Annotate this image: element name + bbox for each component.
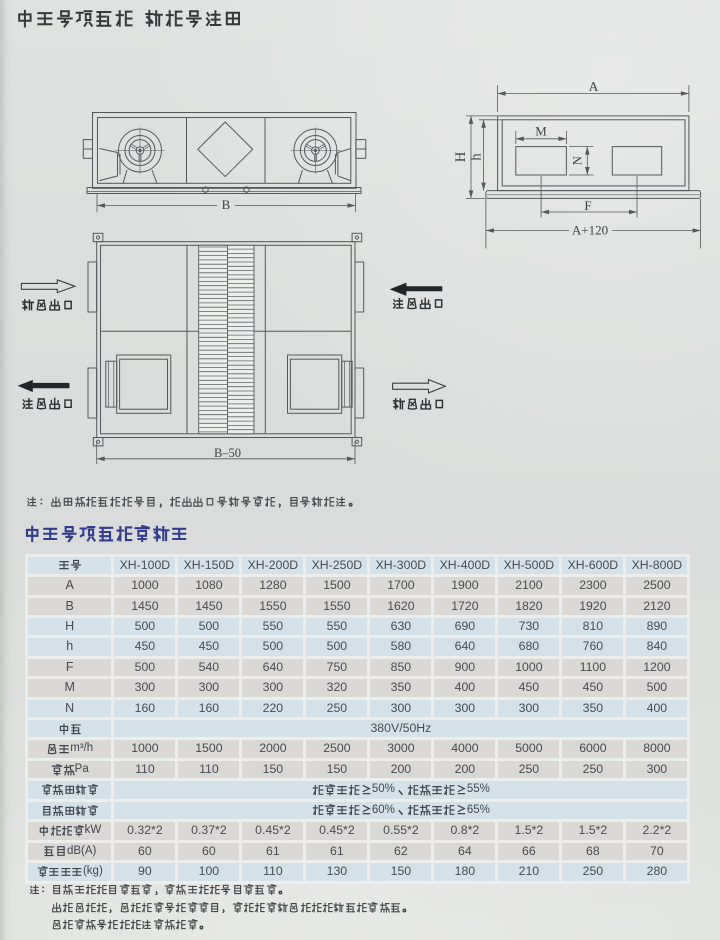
svg-text:A: A	[589, 79, 599, 94]
svg-text:B: B	[222, 197, 231, 212]
svg-text:F: F	[584, 198, 591, 213]
svg-text:M: M	[535, 124, 547, 139]
svg-text:B–50: B–50	[214, 446, 241, 460]
svg-text:N: N	[570, 155, 585, 165]
svg-text:A+120: A+120	[572, 223, 608, 238]
svg-text:H: H	[453, 151, 469, 162]
svg-text:h: h	[469, 153, 485, 161]
